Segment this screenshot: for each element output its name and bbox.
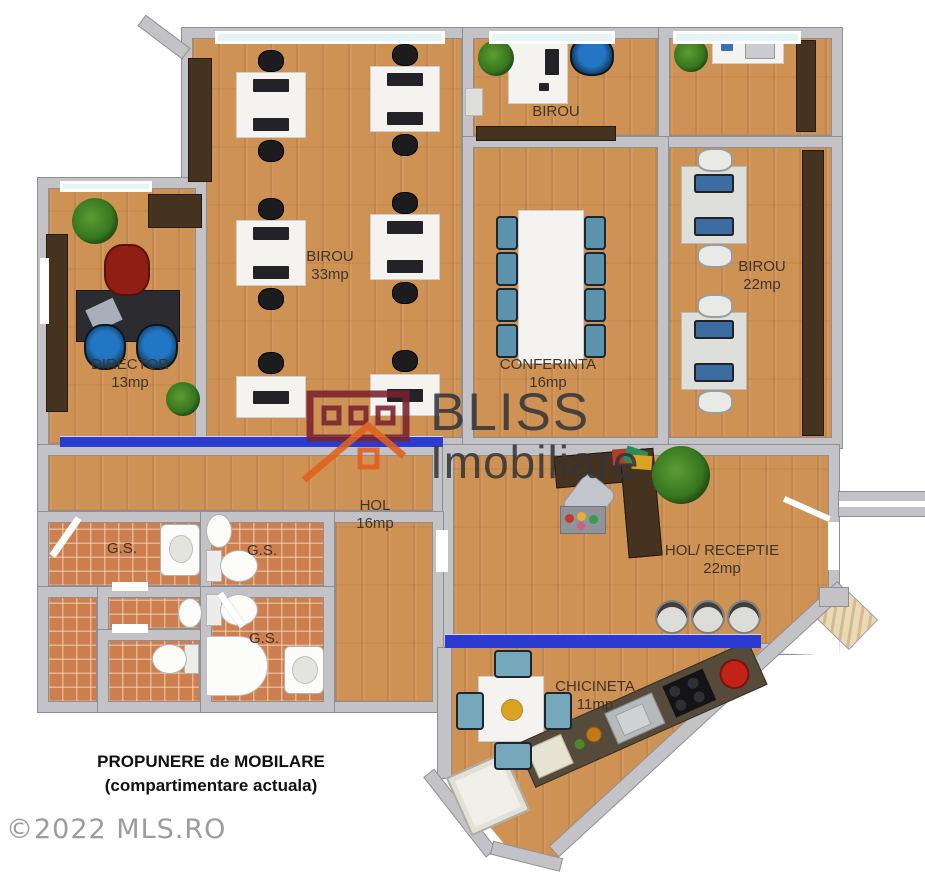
room-label-birou-33: BIROU33mp (306, 248, 354, 284)
office-chair (258, 198, 284, 220)
window (673, 31, 801, 44)
room-label-gs-right-top: G.S. (247, 542, 277, 560)
wardrobe (796, 40, 816, 132)
office-chair (392, 192, 418, 214)
conference-chair (496, 288, 518, 322)
waiting-stool (727, 600, 761, 634)
window (60, 181, 152, 192)
sink (206, 514, 232, 548)
office-chair (697, 148, 733, 172)
conference-chair (496, 252, 518, 286)
desk (681, 312, 747, 390)
desk (508, 38, 568, 104)
low-cabinet (476, 126, 616, 141)
wall-corner-junction (820, 588, 848, 606)
door-opening-wc-stall-1 (112, 582, 148, 591)
room-label-director: DIRECTOR13mp (91, 356, 169, 392)
desk (370, 214, 440, 280)
room-label-chicineta: CHICINETA11mp (555, 678, 635, 714)
cabinet (148, 194, 202, 228)
doormat-receptie (445, 634, 761, 648)
window (215, 31, 445, 44)
conference-chair (584, 252, 606, 286)
door-opening-hol-receptie (436, 530, 448, 572)
office-chair (697, 244, 733, 268)
door-opening-wc-stall-2 (112, 624, 148, 633)
room-label-birou-top: BIROU (532, 103, 580, 121)
sink (178, 598, 202, 628)
sink (284, 646, 324, 694)
wardrobe (188, 58, 212, 182)
watermark: BLISS Imobiliare (300, 388, 639, 486)
desk (236, 220, 306, 286)
stove (662, 669, 716, 718)
conference-chair (584, 216, 606, 250)
plant (652, 446, 710, 504)
desk (236, 376, 306, 418)
wardrobe (46, 234, 68, 412)
door-opening-director-balcony (40, 258, 49, 324)
room-gs-corridor-floor (38, 587, 107, 712)
desk (681, 166, 747, 244)
wardrobe (802, 150, 824, 436)
door-opening-receptie-right (828, 522, 839, 570)
conference-chair (584, 324, 606, 358)
office-chair (697, 390, 733, 414)
waiting-stool (655, 600, 689, 634)
office-chair (258, 288, 284, 310)
side-cabinet (465, 88, 483, 116)
exterior-wall-band (839, 492, 925, 516)
plant (72, 198, 118, 244)
window (489, 31, 615, 44)
office-chair (258, 140, 284, 162)
desk (236, 72, 306, 138)
dining-table (478, 676, 544, 742)
office-chair (258, 50, 284, 72)
waiting-stool (691, 600, 725, 634)
dining-chair (494, 650, 532, 678)
floor-plan-canvas: BIROU BIROU33mp BIROU22mp CONFERINTA16mp… (0, 0, 925, 876)
copyright-text: ©2022 MLS.RO (6, 814, 226, 845)
office-chair (392, 350, 418, 372)
room-label-receptie: HOL/ RECEPTIE22mp (665, 542, 779, 578)
desk-tray (560, 506, 606, 534)
room-label-gs-right-bottom: G.S. (249, 630, 279, 648)
office-chair (392, 134, 418, 156)
conference-chair (584, 288, 606, 322)
conference-chair (496, 324, 518, 358)
cooking-pot (715, 654, 755, 694)
executive-chair (104, 244, 150, 296)
plan-title: PROPUNERE de MOBILARE (compartimentare a… (80, 750, 342, 798)
conference-table (518, 210, 584, 364)
dining-chair (494, 742, 532, 770)
dining-chair (456, 692, 484, 730)
plant (478, 40, 514, 76)
watermark-text: BLISS Imobiliare (430, 388, 639, 486)
sink (160, 524, 200, 576)
conference-chair (496, 216, 518, 250)
room-label-birou-22: BIROU22mp (738, 258, 786, 294)
office-chair (258, 352, 284, 374)
room-label-gs-left: G.S. (107, 540, 137, 558)
desk (370, 66, 440, 132)
toilet (152, 642, 198, 674)
watermark-house-logo (300, 388, 426, 484)
office-chair (392, 44, 418, 66)
office-chair (697, 294, 733, 318)
room-label-hol: HOL16mp (356, 497, 394, 533)
room-hol-vertical-floor (325, 512, 443, 712)
wall-kitchen-left (438, 648, 451, 778)
plant (166, 382, 200, 416)
office-chair (392, 282, 418, 304)
